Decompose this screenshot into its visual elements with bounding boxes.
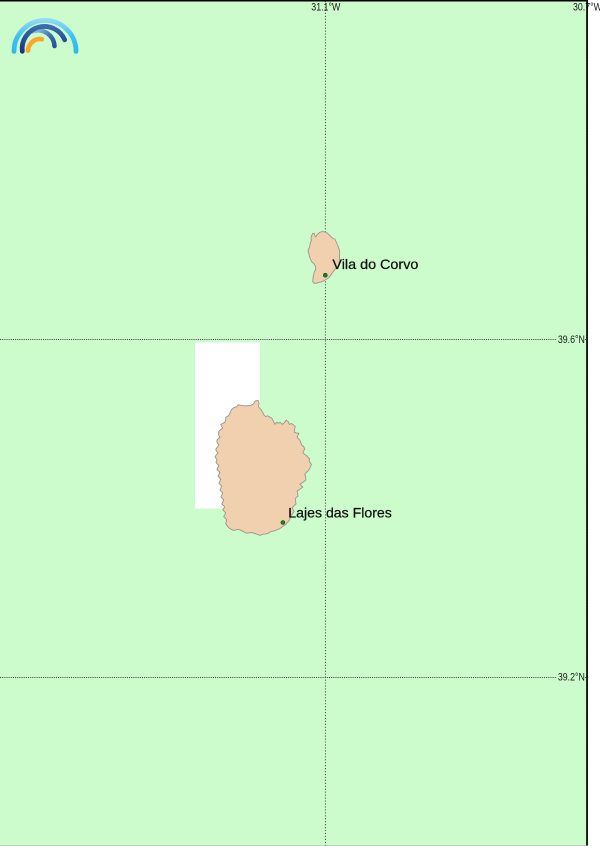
svg-text:39.6°N: 39.6°N: [558, 334, 585, 346]
svg-text:Vila do Corvo: Vila do Corvo: [332, 256, 418, 272]
svg-text:39.2°N: 39.2°N: [558, 672, 585, 684]
svg-text:Lajes das Flores: Lajes das Flores: [288, 505, 392, 521]
svg-text:31.1°W: 31.1°W: [311, 1, 340, 13]
